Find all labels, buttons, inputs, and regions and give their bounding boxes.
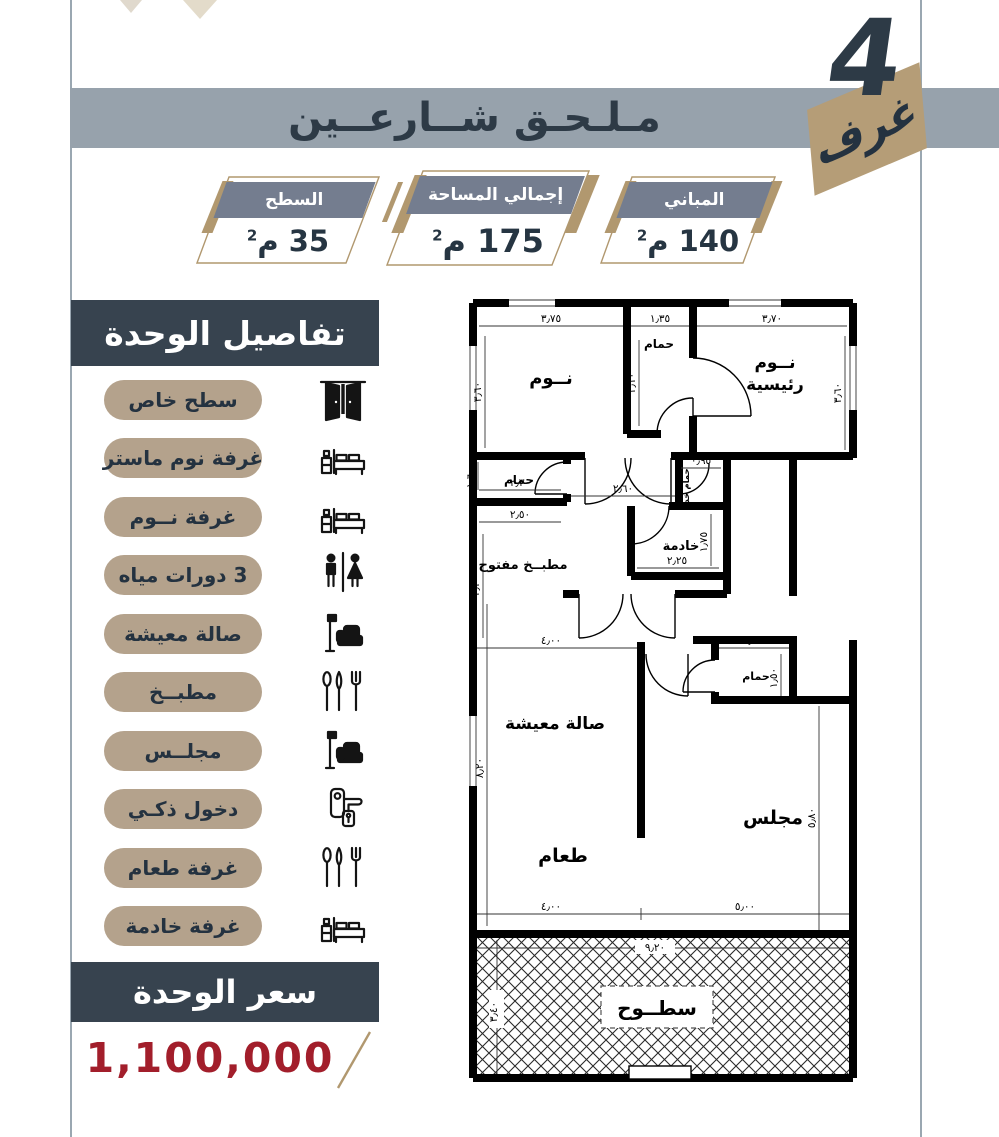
stat-total-area-value: 175 م2 bbox=[386, 222, 590, 260]
dim-label: ١٫٦٠ bbox=[465, 468, 477, 488]
dim-label: ٣٫٦٠ bbox=[832, 383, 844, 403]
feature-pill: مجلــس bbox=[104, 731, 262, 771]
room-label-bath: حمام bbox=[742, 670, 770, 683]
list-item: دخول ذكـي bbox=[104, 787, 368, 831]
room-label-bath: حمام bbox=[644, 337, 674, 352]
feature-pill: 3 دورات مياه bbox=[104, 555, 262, 595]
unit-price-value: 1,100,000 bbox=[85, 1032, 335, 1084]
wc-icon bbox=[318, 551, 368, 599]
page-title: مـلـحـق شــارعــين bbox=[70, 88, 879, 148]
room-label-roof: سطــوح bbox=[617, 996, 697, 1020]
room-label-master-1: نــوم bbox=[754, 353, 795, 373]
roof-notch bbox=[629, 1066, 691, 1079]
dim-label: ٢٫٥٠ bbox=[510, 509, 530, 521]
list-item: غرفة نــوم bbox=[104, 495, 368, 539]
cutlery-icon bbox=[318, 844, 368, 892]
room-label-bedroom: نــوم bbox=[529, 368, 573, 389]
dim-roof-width: ٩٫٢٠ bbox=[645, 942, 665, 954]
smart-lock-icon bbox=[318, 785, 368, 833]
list-item: غرفة خادمة bbox=[104, 904, 368, 948]
dim-label: ٣٫٦٠ bbox=[472, 382, 484, 402]
stat-total-area-label: إجمالي المساحة bbox=[428, 185, 563, 205]
unit-price-title: سعر الوحدة bbox=[71, 962, 379, 1022]
bed-icon bbox=[318, 902, 368, 950]
feature-pill: سطح خاص bbox=[104, 380, 262, 420]
floor-plan: ٩٫٢٠ ٣٫٤٠ ٣٫٧٥ ١٫٣٥ ٣٫٧٠ ٣٫٦٠ ٣٫٦٠ ٢٫١٠ … bbox=[463, 286, 863, 1116]
stat-buildings-label: المباني bbox=[664, 190, 725, 210]
stat-roof-value: 35 م2 bbox=[196, 224, 380, 258]
dim-label: ٣٫٧٠ bbox=[762, 313, 782, 325]
room-label-dining: طعام bbox=[538, 845, 588, 867]
dim-label: ٤٫٠٠ bbox=[541, 635, 561, 647]
dim-label: ٥٫٨٠ bbox=[806, 808, 818, 828]
decor-triangle-large bbox=[183, 0, 217, 19]
stat-buildings: المباني 140 م2 bbox=[600, 176, 776, 264]
stat-roof: السطح 35 م2 bbox=[196, 176, 380, 264]
stat-buildings-banner: المباني bbox=[616, 182, 772, 218]
unit-details-title: تفاصيل الوحدة bbox=[71, 300, 379, 366]
room-label-majlis: مجلس bbox=[743, 807, 803, 829]
feature-pill: غرفة خادمة bbox=[104, 906, 262, 946]
list-item: مجلــس bbox=[104, 729, 368, 773]
decor-triangle-small bbox=[120, 0, 142, 13]
dim-label: ٣٫٧٥ bbox=[541, 313, 561, 325]
dim-label: ١٫٧٥ bbox=[698, 532, 710, 552]
dim-label: ٤٫٠٠ bbox=[541, 901, 561, 913]
room-label-maid-bath: حمام خد bbox=[682, 468, 692, 503]
dim-label: ٢٫٢٥ bbox=[667, 555, 687, 567]
price-slash-icon bbox=[330, 1026, 378, 1092]
room-label-kitchen: مطبــخ مفتوح bbox=[478, 558, 567, 573]
right-frame-line bbox=[920, 0, 922, 1137]
feature-pill: مطبــخ bbox=[104, 672, 262, 712]
stat-roof-label: السطح bbox=[265, 190, 323, 210]
stat-total-area-banner: إجمالي المساحة bbox=[406, 176, 585, 214]
dim-label: ١٫٥٠ bbox=[768, 668, 780, 688]
cutlery-icon bbox=[318, 668, 368, 716]
feature-pill: غرفة نــوم bbox=[104, 497, 262, 537]
dim-label: ٢٫٦٠ bbox=[613, 483, 633, 495]
room-label-master-2: رئيسية bbox=[746, 375, 804, 395]
dim-label: ٠٫٩٥ bbox=[691, 455, 711, 467]
dim-label: ٣٫٢٠ bbox=[470, 576, 482, 596]
sofa-lamp-icon bbox=[318, 610, 368, 658]
unit-details-list: سطح خاص غرفة نوم ماستر غرفة نــوم 3 دورا… bbox=[104, 378, 368, 948]
room-label-maid: خادمة bbox=[663, 539, 700, 554]
list-item: غرفة طعام bbox=[104, 846, 368, 890]
dim-label: ٢٫١٠ bbox=[626, 373, 638, 393]
dimension-lines bbox=[477, 326, 849, 930]
feature-pill: دخول ذكـي bbox=[104, 789, 262, 829]
bed-icon bbox=[318, 434, 368, 482]
dim-label: ٥٫٠٠ bbox=[735, 901, 755, 913]
stat-total-area: إجمالي المساحة 175 م2 bbox=[386, 170, 590, 266]
list-item: سطح خاص bbox=[104, 378, 368, 422]
room-label-bath: حمام bbox=[504, 473, 534, 488]
list-item: مطبــخ bbox=[104, 670, 368, 714]
list-item: صالة معيشة bbox=[104, 612, 368, 656]
sofa-lamp-icon bbox=[318, 727, 368, 775]
dim-label: ١٫٣٥ bbox=[650, 313, 670, 325]
feature-pill: صالة معيشة bbox=[104, 614, 262, 654]
dim-roof-height: ٣٫٤٠ bbox=[488, 1002, 500, 1022]
feature-pill: غرفة نوم ماستر bbox=[104, 438, 262, 478]
feature-pill: غرفة طعام bbox=[104, 848, 262, 888]
stat-buildings-value: 140 م2 bbox=[600, 224, 776, 258]
room-label-living: صالة معيشة bbox=[505, 714, 605, 734]
list-item: غرفة نوم ماستر bbox=[104, 436, 368, 480]
list-item: 3 دورات مياه bbox=[104, 553, 368, 597]
door-icon bbox=[318, 376, 368, 424]
rooms-count: 4 bbox=[793, 6, 938, 112]
dim-label: ٨٫٢٠ bbox=[474, 758, 486, 778]
dim-label: ١٫٦٠ bbox=[743, 635, 763, 647]
bed-icon bbox=[318, 493, 368, 541]
stat-roof-banner: السطح bbox=[213, 182, 375, 218]
